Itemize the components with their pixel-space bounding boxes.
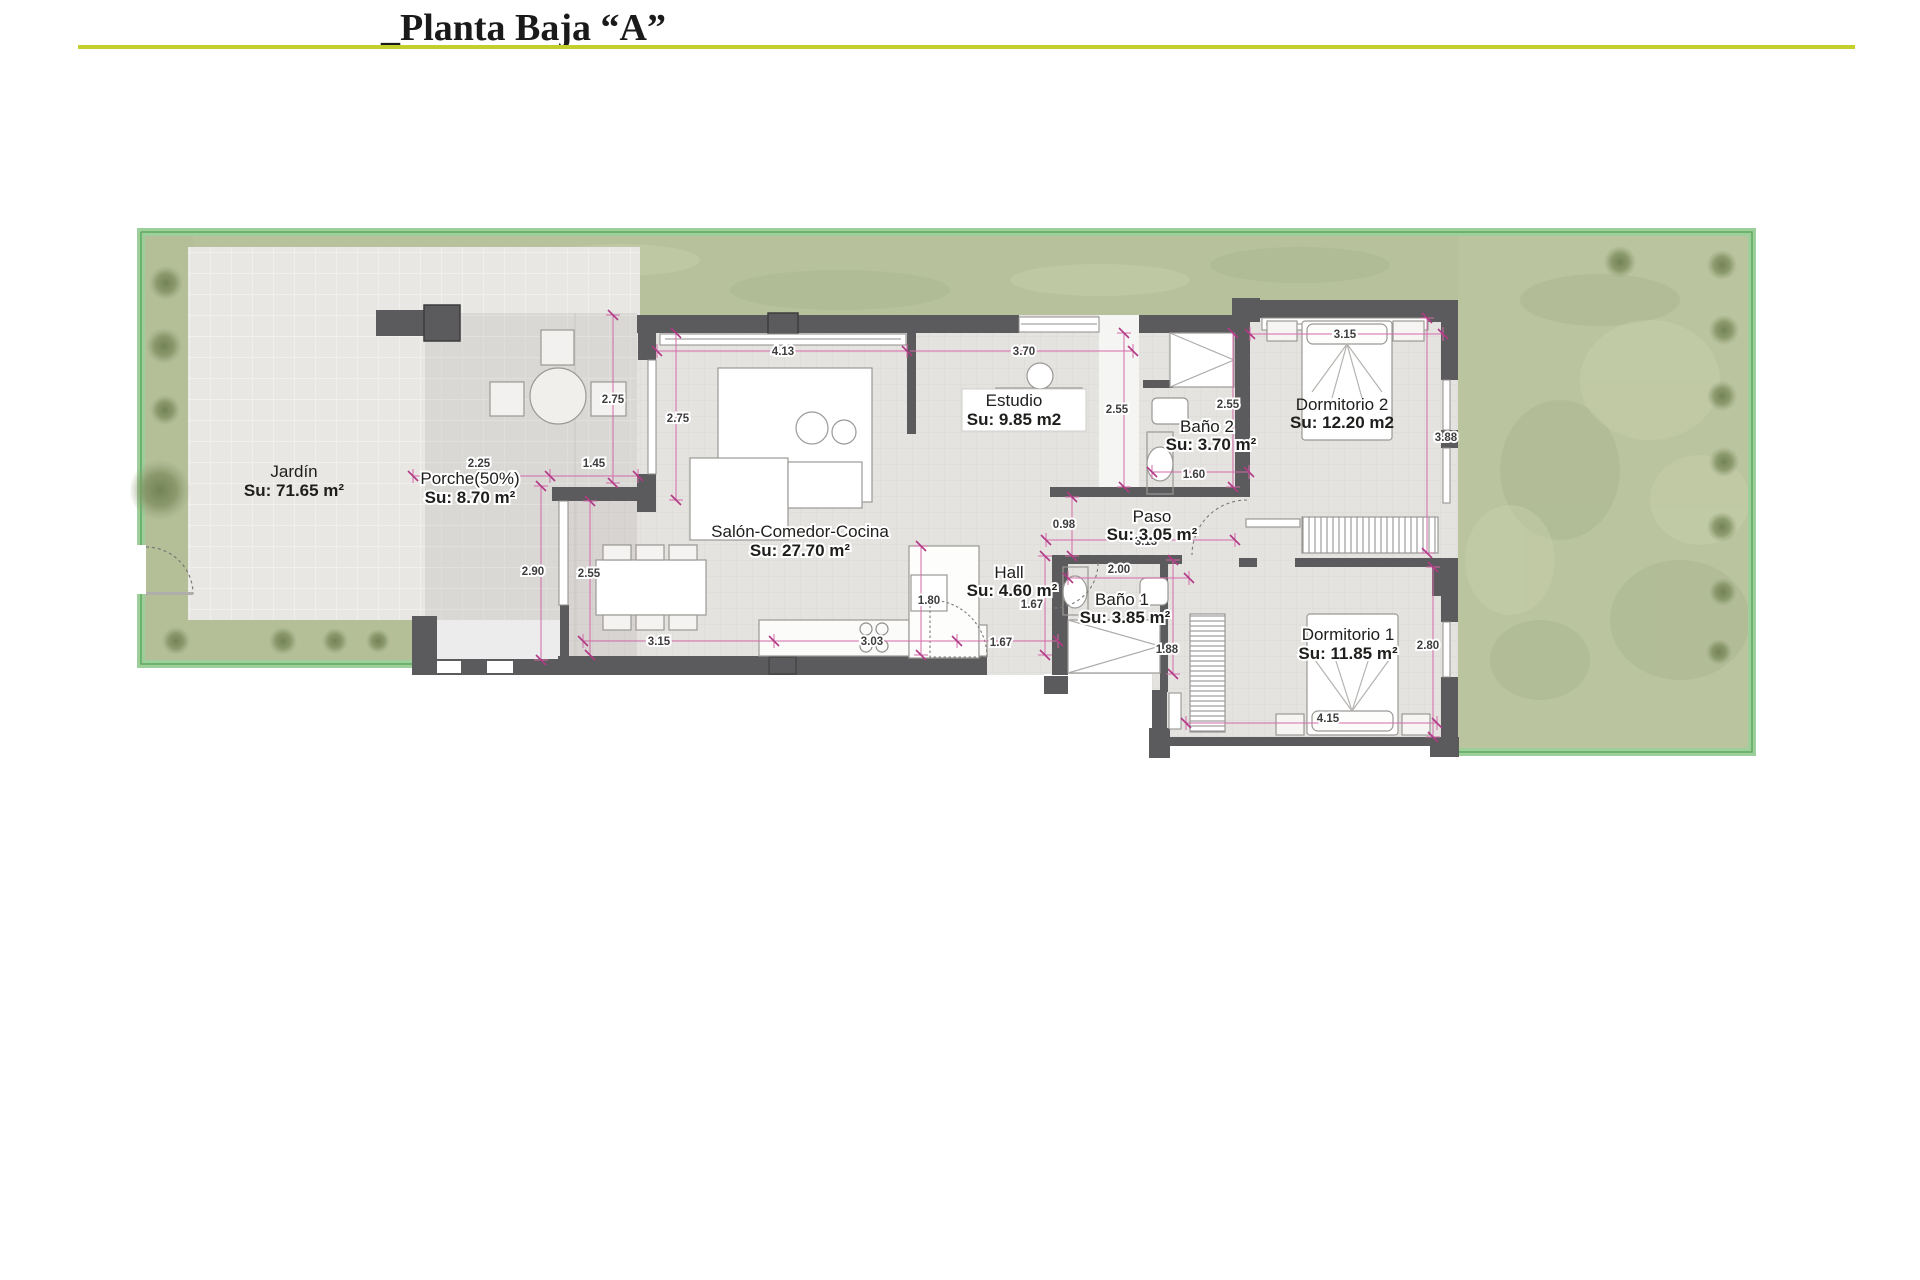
svg-text:Su: 27.70 m²: Su: 27.70 m² xyxy=(750,541,850,560)
svg-text:3.70: 3.70 xyxy=(1013,346,1035,358)
svg-text:Paso: Paso xyxy=(1133,507,1172,526)
svg-text:Porche(50%): Porche(50%) xyxy=(420,469,519,488)
svg-text:Su: 71.65 m²: Su: 71.65 m² xyxy=(244,481,344,500)
svg-text:2.75: 2.75 xyxy=(667,413,690,425)
svg-text:1.80: 1.80 xyxy=(918,595,940,607)
svg-text:2.00: 2.00 xyxy=(1108,564,1130,576)
svg-text:Estudio: Estudio xyxy=(986,391,1043,410)
svg-text:Su: 8.70 m²: Su: 8.70 m² xyxy=(425,488,516,507)
svg-text:1.67: 1.67 xyxy=(990,637,1012,649)
svg-text:_Planta Baja “A”: _Planta Baja “A” xyxy=(380,7,666,49)
svg-text:3.15: 3.15 xyxy=(648,636,671,648)
svg-text:2.80: 2.80 xyxy=(1417,640,1439,652)
svg-text:2.55: 2.55 xyxy=(578,568,601,580)
svg-text:Hall: Hall xyxy=(994,563,1023,582)
svg-text:Dormitorio 1: Dormitorio 1 xyxy=(1302,625,1395,644)
svg-text:3.15: 3.15 xyxy=(1334,329,1357,341)
svg-text:2.55: 2.55 xyxy=(1106,404,1129,416)
svg-text:Jardín: Jardín xyxy=(270,462,317,481)
svg-text:Su: 12.20 m2: Su: 12.20 m2 xyxy=(1290,413,1394,432)
svg-text:Salón-Comedor-Cocina: Salón-Comedor-Cocina xyxy=(711,522,889,541)
svg-text:2.90: 2.90 xyxy=(522,566,544,578)
svg-text:Dormitorio 2: Dormitorio 2 xyxy=(1296,395,1389,414)
svg-text:0.98: 0.98 xyxy=(1053,519,1076,531)
svg-text:Su: 3.05 m²: Su: 3.05 m² xyxy=(1107,525,1198,544)
svg-text:4.13: 4.13 xyxy=(772,346,794,358)
svg-text:2.75: 2.75 xyxy=(602,394,625,406)
svg-text:Baño 2: Baño 2 xyxy=(1180,417,1234,436)
svg-text:Su: 9.85 m2: Su: 9.85 m2 xyxy=(967,410,1062,429)
svg-text:1.45: 1.45 xyxy=(583,458,606,470)
svg-text:Su: 11.85 m²: Su: 11.85 m² xyxy=(1298,644,1398,663)
svg-text:1.60: 1.60 xyxy=(1183,469,1205,481)
svg-text:1.88: 1.88 xyxy=(1156,644,1179,656)
svg-text:3.03: 3.03 xyxy=(861,636,883,648)
svg-text:Baño 1: Baño 1 xyxy=(1095,590,1149,609)
svg-text:4.15: 4.15 xyxy=(1317,713,1340,725)
svg-text:1.67: 1.67 xyxy=(1021,599,1043,611)
svg-text:Su: 3.70 m²: Su: 3.70 m² xyxy=(1166,435,1257,454)
svg-text:Su: 4.60 m²: Su: 4.60 m² xyxy=(967,581,1058,600)
svg-text:Su: 3.85 m²: Su: 3.85 m² xyxy=(1080,608,1171,627)
svg-text:2.55: 2.55 xyxy=(1217,399,1240,411)
svg-text:3.88: 3.88 xyxy=(1435,432,1458,444)
